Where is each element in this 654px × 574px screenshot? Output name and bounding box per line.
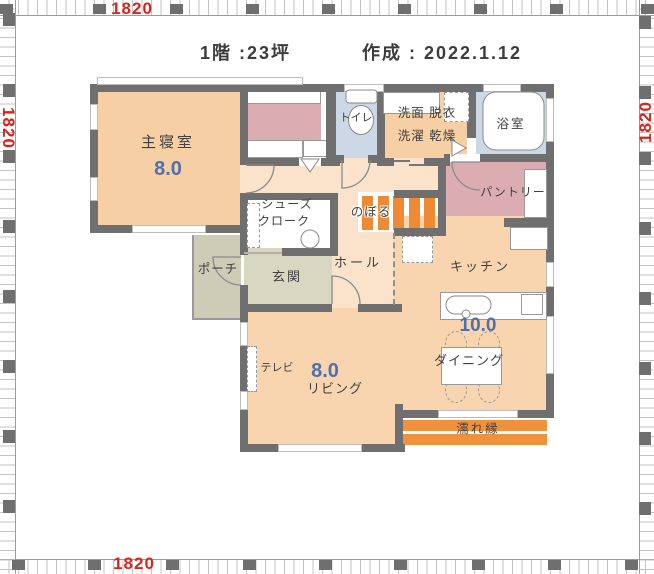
tv-stand xyxy=(247,346,257,392)
ruler-block xyxy=(641,4,654,14)
half-wall-dashed xyxy=(393,233,397,305)
cupboard xyxy=(510,227,548,250)
refrigerator xyxy=(402,236,433,263)
window xyxy=(344,84,384,92)
window xyxy=(546,98,554,142)
ruler-block xyxy=(398,4,411,14)
ruler-block xyxy=(550,4,563,14)
engawa-label: 濡れ縁 xyxy=(456,423,500,437)
dining-label: ダイニング xyxy=(434,354,504,368)
stair-tread xyxy=(409,196,420,230)
stove xyxy=(521,294,543,315)
ruler-block xyxy=(639,16,651,29)
ruler-block xyxy=(3,430,15,443)
hall-label: ホール xyxy=(334,256,382,270)
ruler-block xyxy=(3,84,15,97)
window xyxy=(90,104,98,130)
washroom-label-2: 洗濯 乾燥 xyxy=(398,130,456,144)
ruler-block xyxy=(322,4,335,14)
wall-segment xyxy=(326,155,344,163)
kitchen-dining-size: 10.0 xyxy=(460,316,497,337)
ruler-block xyxy=(639,502,651,515)
porch-label: ポーチ xyxy=(198,263,239,277)
entrance-label: 玄関 xyxy=(272,270,302,284)
created-date: 作成 : 2022.1.12 xyxy=(362,39,522,65)
ruler-block xyxy=(166,560,179,570)
closet-opening xyxy=(299,158,321,166)
ruler-block xyxy=(474,4,487,14)
window xyxy=(438,410,518,418)
ruler-block xyxy=(639,362,651,375)
ruler-block xyxy=(243,560,256,570)
window-band-top xyxy=(97,77,303,85)
window xyxy=(546,262,554,287)
bath-label: 浴室 xyxy=(496,118,525,132)
dim-label-left: 1820 xyxy=(0,100,16,156)
shoe-closet-label-1: シューズ xyxy=(261,198,312,211)
ruler-block xyxy=(170,4,183,14)
wall-segment xyxy=(377,158,394,166)
window xyxy=(240,322,248,346)
ruler-block xyxy=(548,560,561,570)
ruler-block xyxy=(246,4,259,14)
pantry-door-opening xyxy=(450,154,480,162)
bedroom-size: 8.0 xyxy=(154,158,182,180)
stair-tread xyxy=(393,196,404,230)
closet-shelf-bottom xyxy=(247,140,303,158)
window xyxy=(240,391,248,410)
toilet-label: トイレ xyxy=(340,112,373,124)
wall-segment xyxy=(504,218,554,227)
stair-tread xyxy=(424,196,435,230)
floor-title: 1階 :23坪 xyxy=(200,39,291,65)
ruler-block xyxy=(394,560,407,570)
window xyxy=(278,444,362,452)
wall-segment xyxy=(240,84,248,165)
tv-label: テレビ xyxy=(261,362,294,374)
bedroom-door-opening xyxy=(240,165,248,193)
ruler-block xyxy=(639,432,651,445)
ruler-block xyxy=(12,560,25,570)
window xyxy=(90,177,98,201)
shoe-closet-label-2: クローク xyxy=(258,215,310,228)
kitchen-label: キッチン xyxy=(450,260,510,274)
closet-pink-area xyxy=(247,104,321,140)
living-size: 8.0 xyxy=(311,360,339,382)
wall-segment xyxy=(358,304,402,312)
ruler-block xyxy=(3,500,15,513)
ruler-block xyxy=(3,220,15,233)
ruler-block xyxy=(472,560,485,570)
wall-segment xyxy=(394,228,446,236)
dim-label-top: 1820 xyxy=(104,1,160,17)
entrance-step-line xyxy=(244,252,282,254)
ruler-block xyxy=(319,560,332,570)
wall-segment xyxy=(394,190,446,198)
window xyxy=(132,225,206,233)
ruler-block xyxy=(639,292,651,305)
ruler-block xyxy=(88,560,101,570)
window xyxy=(546,316,554,374)
wall-segment xyxy=(330,193,338,256)
ruler-block xyxy=(3,13,15,26)
wall-segment xyxy=(282,248,332,256)
room-porch xyxy=(192,235,241,320)
bedroom-label: 主寝室 xyxy=(141,135,195,152)
pantry-label: パントリー xyxy=(480,186,546,199)
stairs-label: のぼる xyxy=(351,206,392,220)
floor-plan-page: 1820 1820 1820 1820 1階 :23坪 作成 : 2022.1.… xyxy=(0,0,654,574)
ruler-block xyxy=(625,560,638,570)
living-label: リビング xyxy=(307,382,363,396)
ruler-block xyxy=(3,290,15,303)
ruler-block xyxy=(3,360,15,373)
wall-segment xyxy=(240,304,332,312)
washroom-label-1: 洗面 脱衣 xyxy=(398,107,456,121)
window xyxy=(483,84,521,92)
dim-label-right: 1820 xyxy=(638,94,654,150)
wall-segment xyxy=(326,84,336,163)
ruler-block xyxy=(639,222,651,235)
dim-label-bottom: 1820 xyxy=(106,556,162,572)
ruler-block xyxy=(639,152,651,165)
